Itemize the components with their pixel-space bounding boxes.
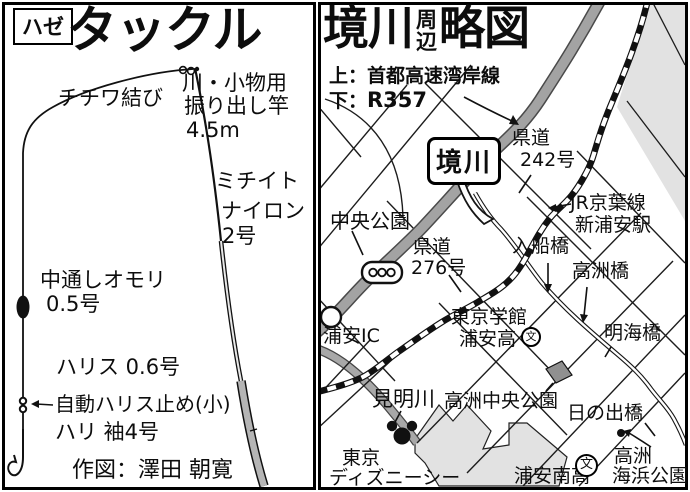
label-sinker-name: 中通しオモリ (40, 270, 166, 292)
map-title-main: 境川 (323, 5, 413, 51)
label-line-material: ナイロン (221, 201, 305, 223)
label-akemi-bridge: 明海橋 (604, 324, 661, 344)
interchange-icon (321, 307, 341, 327)
label-hinode-bridge: 日の出橋 (567, 404, 643, 424)
label-jr-station: 新浦安駅 (575, 216, 651, 236)
label-school1-line2: 浦安高 (459, 330, 516, 350)
label-takasu-chuo-park: 高洲中央公園 (444, 392, 558, 412)
label-kaihin-park-1: 高洲 (614, 447, 652, 467)
label-disney-2: ディズニーシー (329, 469, 460, 489)
legend-expressway: 上：首都高速湾岸線 (329, 67, 500, 87)
label-irifune-bridge: 入船橋 (512, 237, 569, 257)
school-symbol-gakkan: 文 (521, 327, 541, 347)
stopper-ring-1 (20, 398, 26, 404)
label-line-name: ミチイト (215, 171, 299, 193)
label-hook: ハリ 袖4号 (55, 422, 159, 444)
label-takasu-bridge: 高洲橋 (572, 262, 629, 282)
label-kaihin-park-2: 海浜公園 (612, 467, 688, 487)
tackle-panel: ハゼ タックル チチワ結び 川・小物用 振り出し竿 4.5m ミチイト ナイロン… (2, 2, 316, 490)
label-school1-line1: 東京学館 (451, 308, 527, 328)
label-jr-line: JR京葉線 (570, 194, 646, 214)
label-stopper: 自動ハリス止め(小) (55, 394, 231, 415)
label-mimei-river: 見明川 (372, 389, 435, 411)
label-kendo242-1: 県道 (512, 129, 550, 149)
legend-r357: 下：R357 (329, 90, 427, 112)
map-panel: 境川 周 辺 略図 上：首都高速湾岸線 下：R357 境川 文 文 県道 242… (318, 2, 688, 490)
label-sinker-size: 0.5号 (46, 294, 100, 316)
label-rod-type: 振り出し竿 (184, 96, 289, 118)
label-rod-use: 川・小物用 (182, 73, 287, 95)
label-urayasu-ic: 浦安IC (323, 327, 380, 347)
credit: 作図：澤田 朝寛 (72, 460, 233, 483)
hook (8, 429, 23, 475)
map-title-sub: 周 辺 (416, 9, 437, 53)
page: ハゼ タックル チチワ結び 川・小物用 振り出し竿 4.5m ミチイト ナイロン… (0, 0, 690, 492)
map-title: 境川 周 辺 略図 (323, 5, 529, 53)
label-kendo276-1: 県道 (413, 238, 451, 258)
fish-tag: ハゼ (13, 8, 73, 45)
label-disney-1: 東京 (342, 449, 380, 469)
map-title-tail: 略図 (439, 5, 529, 51)
park-dot-icon (617, 429, 625, 437)
label-chuo-park: 中央公園 (330, 211, 410, 232)
building-icon (546, 361, 572, 383)
label-leader: ハリス 0.6号 (56, 357, 180, 379)
area-northeast-block (617, 5, 685, 221)
panel-title: タックル (67, 5, 262, 55)
stopper-ring-2 (20, 406, 26, 412)
sinker-weight (17, 296, 30, 319)
label-knot: チチワ結び (58, 88, 163, 110)
school-symbol-minami: 文 (575, 454, 598, 477)
label-line-size: 2号 (222, 226, 256, 248)
label-rod-length: 4.5m (186, 120, 240, 142)
label-kendo242-2: 242号 (520, 151, 575, 171)
sakai-river-callout: 境川 (427, 137, 501, 185)
label-kendo276-2: 276号 (411, 259, 466, 279)
